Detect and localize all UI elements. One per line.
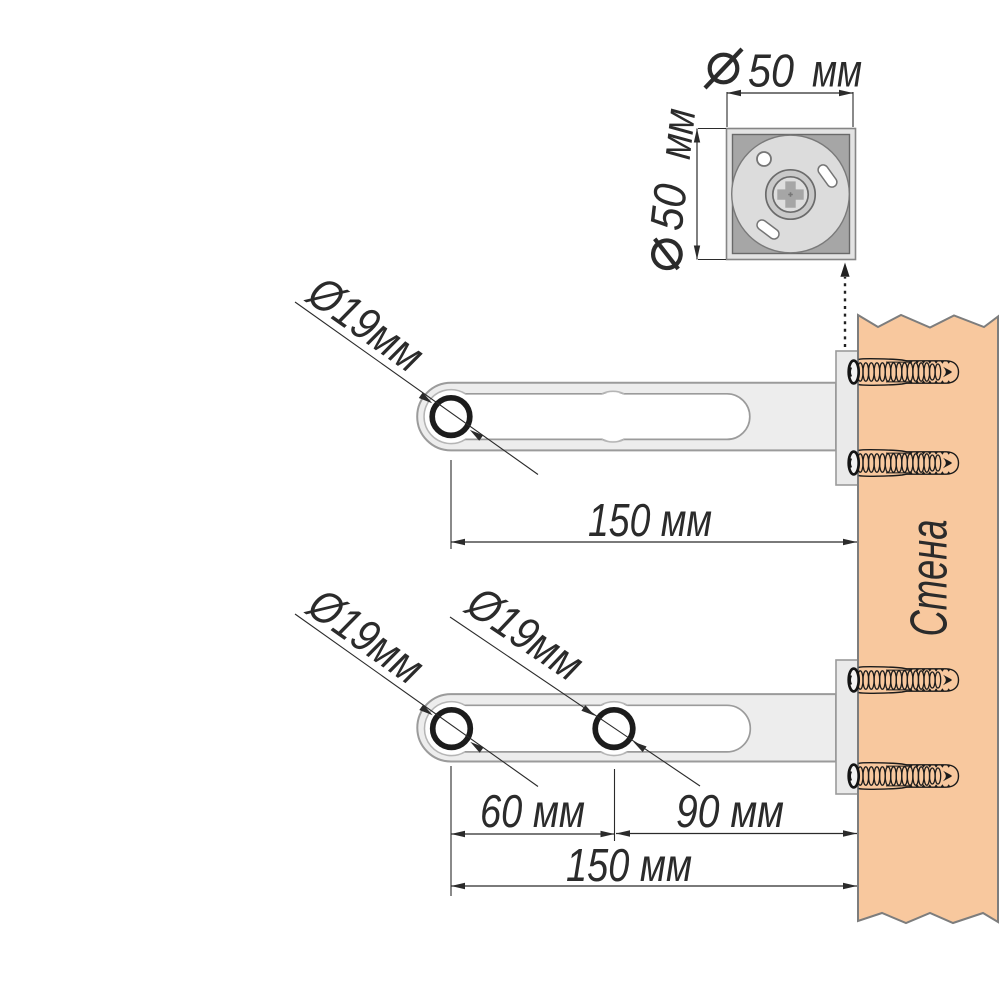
svg-text:150 мм: 150 мм <box>588 494 712 546</box>
svg-text:90 мм: 90 мм <box>676 785 784 837</box>
svg-text:150 мм: 150 мм <box>566 839 692 891</box>
svg-text:50: 50 <box>640 181 697 233</box>
svg-text:мм: мм <box>648 106 705 162</box>
svg-text:Ø19мм: Ø19мм <box>457 575 594 691</box>
svg-text:мм: мм <box>812 45 862 97</box>
svg-text:Ø19мм: Ø19мм <box>298 265 434 382</box>
svg-text:Стена: Стена <box>901 520 959 637</box>
svg-text:50: 50 <box>748 45 794 97</box>
svg-text:60 мм: 60 мм <box>480 785 585 837</box>
svg-text:Ø19мм: Ø19мм <box>298 577 434 694</box>
